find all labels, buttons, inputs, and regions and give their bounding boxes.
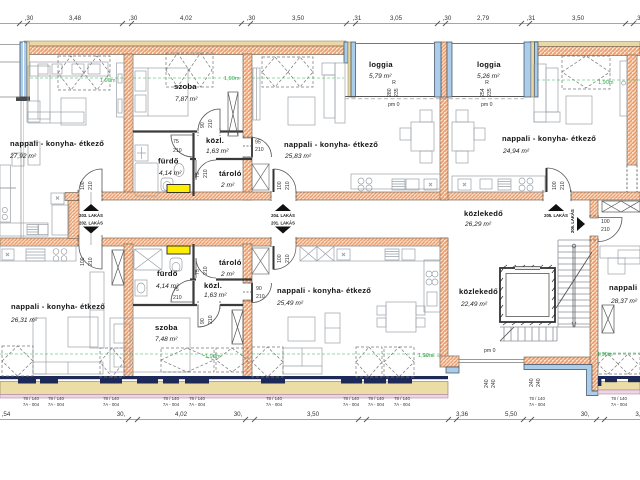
svg-text:nappali - konyha- étkező: nappali - konyha- étkező bbox=[11, 302, 105, 311]
svg-text:3,48: 3,48 bbox=[69, 15, 82, 22]
svg-text:2 m²: 2 m² bbox=[220, 182, 235, 189]
svg-text:210: 210 bbox=[208, 119, 214, 128]
svg-text:210: 210 bbox=[88, 181, 94, 190]
svg-text:7A - 004: 7A - 004 bbox=[394, 402, 411, 407]
svg-text:,30: ,30 bbox=[247, 15, 256, 22]
svg-text:90: 90 bbox=[256, 286, 262, 292]
svg-text:4,02: 4,02 bbox=[180, 15, 193, 22]
svg-text:78 / 140: 78 / 140 bbox=[48, 396, 64, 401]
svg-text:1,90m: 1,90m bbox=[597, 352, 613, 358]
svg-text:7A - 004: 7A - 004 bbox=[103, 402, 120, 407]
svg-text:közl.: közl. bbox=[206, 136, 224, 145]
svg-text:7A - 004: 7A - 004 bbox=[529, 402, 546, 407]
svg-text:nappali: nappali bbox=[609, 283, 637, 292]
svg-text:nappali - konyha- étkező: nappali - konyha- étkező bbox=[10, 139, 104, 148]
svg-text:3,50: 3,50 bbox=[307, 411, 320, 418]
svg-text:7A - 004: 7A - 004 bbox=[368, 402, 385, 407]
svg-text:75: 75 bbox=[195, 269, 201, 275]
svg-text:2 m²: 2 m² bbox=[220, 271, 235, 278]
svg-text:24,94 m²: 24,94 m² bbox=[502, 148, 530, 155]
svg-text:210: 210 bbox=[88, 257, 94, 266]
svg-text:R: R bbox=[485, 80, 489, 86]
svg-text:5,79 m²: 5,79 m² bbox=[369, 73, 392, 80]
svg-text:szoba: szoba bbox=[174, 82, 197, 91]
svg-text:1,90m: 1,90m bbox=[418, 353, 434, 359]
svg-text:3,: 3, bbox=[635, 411, 640, 418]
svg-text:204. LAKÁS: 204. LAKÁS bbox=[271, 213, 295, 218]
svg-text:100: 100 bbox=[601, 219, 610, 225]
svg-text:7,87 m²: 7,87 m² bbox=[175, 96, 198, 103]
svg-text:78 / 140: 78 / 140 bbox=[394, 396, 410, 401]
svg-text:75: 75 bbox=[195, 172, 201, 178]
svg-text:1,90m: 1,90m bbox=[100, 78, 116, 84]
svg-text:3,50: 3,50 bbox=[292, 15, 305, 22]
svg-text:pm 0: pm 0 bbox=[388, 102, 400, 108]
svg-text:210: 210 bbox=[255, 147, 264, 153]
svg-text:90: 90 bbox=[200, 318, 206, 324]
svg-text:240: 240 bbox=[491, 379, 497, 388]
svg-text:4,02: 4,02 bbox=[175, 411, 188, 418]
svg-text:201. LAKÁS: 201. LAKÁS bbox=[271, 221, 295, 226]
svg-text:tároló: tároló bbox=[219, 258, 242, 267]
svg-text:210: 210 bbox=[601, 227, 610, 233]
svg-text:szoba: szoba bbox=[155, 323, 178, 332]
svg-text:1,90m: 1,90m bbox=[598, 80, 614, 86]
svg-text:95: 95 bbox=[255, 140, 261, 146]
svg-text:1,90m: 1,90m bbox=[205, 354, 221, 360]
svg-text:22,49 m²: 22,49 m² bbox=[460, 301, 488, 308]
svg-text:3,50: 3,50 bbox=[572, 15, 585, 22]
svg-text:100: 100 bbox=[552, 181, 558, 190]
svg-text:205. LAKÁS: 205. LAKÁS bbox=[544, 213, 568, 218]
svg-text:7A - 004: 7A - 004 bbox=[343, 402, 360, 407]
svg-text:közlekedő: közlekedő bbox=[464, 209, 503, 218]
svg-text:7A - 004: 7A - 004 bbox=[189, 402, 206, 407]
svg-text:,30: ,30 bbox=[443, 15, 452, 22]
svg-text:7A - 004: 7A - 004 bbox=[266, 402, 283, 407]
svg-text:100: 100 bbox=[80, 257, 86, 266]
svg-text:78 / 140: 78 / 140 bbox=[343, 396, 359, 401]
svg-text:26,29 m²: 26,29 m² bbox=[464, 221, 492, 228]
svg-text:30,: 30, bbox=[117, 411, 126, 418]
svg-text:203. LAKÁS: 203. LAKÁS bbox=[79, 213, 103, 218]
svg-text:210: 210 bbox=[173, 295, 182, 301]
svg-text:,31: ,31 bbox=[527, 15, 536, 22]
svg-text:pm 0: pm 0 bbox=[481, 102, 493, 108]
svg-text:78 / 140: 78 / 140 bbox=[163, 396, 179, 401]
svg-text:75: 75 bbox=[173, 139, 179, 145]
svg-text:210: 210 bbox=[203, 169, 209, 178]
svg-text:loggia: loggia bbox=[369, 60, 393, 69]
svg-text:,54: ,54 bbox=[2, 411, 11, 418]
svg-text:240: 240 bbox=[536, 378, 542, 387]
svg-text:202. LAKÁS: 202. LAKÁS bbox=[79, 221, 103, 226]
svg-text:27,92 m²: 27,92 m² bbox=[9, 153, 37, 160]
svg-text:78 / 140: 78 / 140 bbox=[266, 396, 282, 401]
svg-text:235: 235 bbox=[394, 88, 400, 97]
svg-text:nappali - konyha- étkező: nappali - konyha- étkező bbox=[502, 134, 596, 143]
svg-text:210: 210 bbox=[203, 266, 209, 275]
svg-text:5,26 m²: 5,26 m² bbox=[477, 73, 500, 80]
svg-text:235: 235 bbox=[487, 88, 493, 97]
svg-text:78 / 140: 78 / 140 bbox=[23, 396, 39, 401]
svg-text:25,49 m²: 25,49 m² bbox=[276, 300, 304, 307]
svg-text:nappali - konyha- étkező: nappali - konyha- étkező bbox=[277, 286, 371, 295]
svg-text:210: 210 bbox=[173, 148, 182, 154]
svg-text:fürdő: fürdő bbox=[158, 157, 179, 166]
svg-text:R: R bbox=[392, 80, 396, 86]
svg-text:280: 280 bbox=[387, 88, 393, 97]
svg-text:közl.: közl. bbox=[204, 281, 222, 290]
svg-text:100: 100 bbox=[80, 181, 86, 190]
svg-text:78 / 140: 78 / 140 bbox=[611, 396, 627, 401]
svg-text:pm 0: pm 0 bbox=[484, 348, 496, 354]
svg-text:254: 254 bbox=[480, 88, 486, 97]
svg-text:28,37 m²: 28,37 m² bbox=[610, 298, 638, 305]
svg-text:240: 240 bbox=[484, 379, 490, 388]
svg-text:206. LAKÁS: 206. LAKÁS bbox=[570, 209, 575, 233]
svg-text:100: 100 bbox=[277, 254, 283, 263]
svg-text:30,: 30, bbox=[581, 411, 590, 418]
svg-text:loggia: loggia bbox=[477, 60, 501, 69]
svg-text:26,31 m²: 26,31 m² bbox=[10, 317, 38, 324]
svg-text:3,05: 3,05 bbox=[390, 15, 403, 22]
svg-text:210: 210 bbox=[285, 181, 291, 190]
svg-text:,3: ,3 bbox=[635, 15, 640, 22]
svg-text:tároló: tároló bbox=[219, 169, 242, 178]
svg-text:7A - 004: 7A - 004 bbox=[23, 402, 40, 407]
svg-text:90: 90 bbox=[200, 122, 206, 128]
svg-text:2,79: 2,79 bbox=[477, 15, 490, 22]
svg-text:4,14 m²: 4,14 m² bbox=[159, 170, 182, 177]
svg-text:210: 210 bbox=[560, 181, 566, 190]
svg-text:3,36: 3,36 bbox=[456, 411, 469, 418]
svg-text:78 / 140: 78 / 140 bbox=[529, 396, 545, 401]
svg-text:közlekedő: közlekedő bbox=[459, 287, 498, 296]
svg-text:7,48 m²: 7,48 m² bbox=[155, 336, 178, 343]
svg-text:,30: ,30 bbox=[25, 15, 34, 22]
svg-text:78 / 140: 78 / 140 bbox=[368, 396, 384, 401]
svg-text:25,83 m²: 25,83 m² bbox=[284, 153, 312, 160]
svg-text:fürdő: fürdő bbox=[157, 269, 178, 278]
svg-text:78 / 140: 78 / 140 bbox=[189, 396, 205, 401]
svg-text:7A - 004: 7A - 004 bbox=[48, 402, 65, 407]
svg-text:,31: ,31 bbox=[353, 15, 362, 22]
svg-text:5,50: 5,50 bbox=[505, 411, 518, 418]
svg-text:1,90m: 1,90m bbox=[224, 76, 240, 82]
svg-text:1,63 m²: 1,63 m² bbox=[204, 292, 227, 299]
svg-text:78 / 140: 78 / 140 bbox=[103, 396, 119, 401]
svg-text:240: 240 bbox=[529, 378, 535, 387]
svg-text:,30: ,30 bbox=[129, 15, 138, 22]
svg-text:100: 100 bbox=[277, 181, 283, 190]
svg-text:75: 75 bbox=[173, 287, 179, 293]
svg-text:7A - 004: 7A - 004 bbox=[163, 402, 180, 407]
svg-text:30,: 30, bbox=[234, 411, 243, 418]
svg-text:nappali - konyha- étkező: nappali - konyha- étkező bbox=[284, 140, 378, 149]
svg-text:1,63 m²: 1,63 m² bbox=[206, 148, 229, 155]
svg-text:7A - 004: 7A - 004 bbox=[611, 402, 628, 407]
svg-text:210: 210 bbox=[285, 254, 291, 263]
svg-text:210: 210 bbox=[208, 315, 214, 324]
svg-text:210: 210 bbox=[256, 294, 265, 300]
